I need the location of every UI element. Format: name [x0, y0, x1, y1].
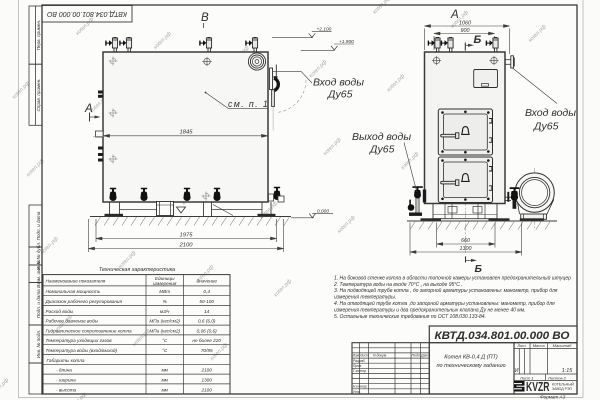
- svg-text:Масштаб: Масштаб: [553, 343, 572, 348]
- svg-text:измерения температуры.: измерения температуры.: [334, 295, 396, 301]
- svg-text:2100: 2100: [200, 387, 212, 392]
- svg-text:по техническому заданию: по техническому заданию: [436, 363, 506, 369]
- svg-text:Техническая характеристика: Техническая характеристика: [99, 267, 175, 273]
- svg-text:Температура воды (вход/выход): Температура воды (вход/выход): [46, 348, 118, 353]
- svg-text:А: А: [84, 103, 93, 115]
- svg-text:14: 14: [204, 309, 210, 314]
- svg-text:N докум.: N докум.: [373, 354, 387, 358]
- svg-text:А: А: [450, 9, 459, 21]
- svg-text:Диапазон рабочего регулировани: Диапазон рабочего регулирования: [45, 299, 123, 304]
- svg-text:Взам. инв. №: Взам. инв. №: [36, 259, 41, 287]
- svg-text:измерения: измерения: [153, 281, 177, 286]
- svg-text:Утв.: Утв.: [353, 390, 361, 394]
- svg-text:Лит.: Лит.: [516, 343, 526, 348]
- svg-text:Разраб.: Разраб.: [353, 359, 366, 363]
- svg-text:КВТД.034.801.00.000 ВО: КВТД.034.801.00.000 ВО: [435, 330, 570, 342]
- svg-text:Единицы: Единицы: [155, 276, 175, 281]
- svg-text:ЗАВОД РЭП: ЗАВОД РЭП: [552, 387, 573, 391]
- svg-text:Пров.: Пров.: [353, 364, 362, 368]
- svg-text:МВт: МВт: [159, 289, 170, 294]
- svg-text:Вход воды: Вход воды: [313, 77, 364, 89]
- svg-text:- ширина: - ширина: [56, 377, 76, 382]
- svg-text:4. На отводящей трубе котла ,: 4. На отводящей трубе котла ,до запорной…: [334, 300, 555, 307]
- svg-text:Дата: Дата: [420, 354, 430, 358]
- svg-text:Н.контр.: Н.контр.: [353, 385, 368, 389]
- svg-text:2100: 2100: [179, 243, 194, 249]
- svg-text:Инв. № подл.: Инв. № подл.: [36, 330, 41, 359]
- svg-text:Подп. и дата: Подп. и дата: [36, 289, 41, 318]
- svg-text:Ду65: Ду65: [369, 144, 395, 156]
- svg-text:0.000: 0.000: [317, 208, 329, 214]
- svg-text:+2.100: +2.100: [317, 26, 332, 32]
- svg-text:Ду65: Ду65: [327, 89, 353, 101]
- svg-text:70/95: 70/95: [201, 348, 213, 353]
- svg-text:Значение: Значение: [196, 278, 217, 283]
- svg-text:0,6 (6,0): 0,6 (6,0): [198, 319, 216, 324]
- svg-text:Справ. примен.: Справ. примен.: [36, 78, 41, 111]
- svg-text:мм: мм: [161, 368, 168, 373]
- svg-text:Номинальная мощность: Номинальная мощность: [46, 289, 101, 294]
- svg-text:не более 220: не более 220: [192, 338, 221, 343]
- svg-text:Гидравлическое сопротивление к: Гидравлическое сопротивление котла: [46, 328, 133, 333]
- svg-text:Листов 2: Листов 2: [547, 375, 567, 380]
- svg-text:Рабочее давление воды: Рабочее давление воды: [46, 319, 99, 324]
- svg-text:Ду65: Ду65: [533, 121, 559, 133]
- svg-text:1. На боковой стенке котла в: 1. На боковой стенке котла в области топ…: [334, 274, 571, 281]
- svg-text:Температура уходящих газов: Температура уходящих газов: [46, 338, 113, 343]
- svg-text:Вход воды: Вход воды: [525, 107, 576, 119]
- svg-text:Котел КВ-0,4 Д (ПТ): Котел КВ-0,4 Д (ПТ): [444, 355, 498, 361]
- svg-text:- длина: - длина: [56, 368, 72, 373]
- svg-text:1300: 1300: [460, 246, 472, 252]
- svg-text:В: В: [201, 12, 209, 24]
- svg-text:мм: мм: [161, 377, 168, 382]
- svg-text:1060: 1060: [459, 20, 471, 26]
- svg-text:660: 660: [461, 238, 470, 244]
- svg-text:Подп.: Подп.: [412, 354, 421, 358]
- svg-text:мм: мм: [161, 387, 168, 392]
- svg-text:Лист: Лист: [359, 354, 369, 358]
- svg-text:5. Остальные технические треб: 5. Остальные технические требования по О…: [334, 314, 486, 320]
- svg-text:1:15: 1:15: [562, 368, 573, 374]
- svg-text:2100: 2100: [200, 368, 212, 373]
- svg-text:измерения температуры и два пр: измерения температуры и два предохраните…: [334, 308, 526, 314]
- svg-text:1975: 1975: [180, 233, 194, 239]
- svg-text:Б: Б: [475, 263, 483, 275]
- svg-text:см. п. 1: см. п. 1: [228, 99, 269, 109]
- svg-text:Перв. примен.: Перв. примен.: [36, 20, 41, 51]
- svg-text:0,4: 0,4: [203, 289, 210, 294]
- svg-text:- высота: - высота: [56, 387, 77, 392]
- svg-text:Масса: Масса: [533, 343, 546, 348]
- svg-text:Формат А3: Формат А3: [540, 395, 566, 400]
- svg-text:0,06 (0,6): 0,06 (0,6): [197, 328, 218, 333]
- svg-text:Подп. и дата: Подп. и дата: [36, 211, 41, 240]
- svg-text:50-100: 50-100: [199, 299, 214, 304]
- svg-text:МПа (кгс/см2): МПа (кгс/см2): [149, 328, 180, 333]
- svg-text:КВТД.034.801.00.000 ВО: КВТД.034.801.00.000 ВО: [47, 10, 127, 17]
- svg-text:Б: Б: [474, 34, 482, 46]
- svg-text:Наименование показателя: Наименование показателя: [46, 278, 106, 283]
- svg-text:KVZR: KVZR: [526, 380, 550, 394]
- svg-text:Изм.: Изм.: [353, 354, 360, 358]
- svg-text:Расход воды: Расход воды: [46, 309, 74, 314]
- svg-text:°С: °С: [162, 338, 168, 343]
- svg-text:3. На подводящей трубе котла: 3. На подводящей трубе котла , до запорн…: [334, 287, 558, 294]
- svg-text:КОТЕЛЬНЫЙ: КОТЕЛЬНЫЙ: [552, 382, 574, 386]
- svg-text:Выход воды: Выход воды: [352, 131, 411, 143]
- svg-text:2. Температура воды на входе: 2. Температура воды на входе 70°С , на в…: [333, 282, 463, 288]
- svg-text:МПа (кгс/см2): МПа (кгс/см2): [149, 319, 180, 324]
- svg-text:°С: °С: [162, 348, 168, 353]
- svg-text:900: 900: [461, 28, 470, 34]
- svg-text:%: %: [163, 299, 167, 304]
- svg-text:Т.контр.: Т.контр.: [353, 369, 367, 373]
- svg-text:Габариты котла: Габариты котла: [47, 358, 85, 363]
- svg-text:м3/ч: м3/ч: [160, 309, 170, 314]
- svg-text:И: И: [515, 368, 519, 374]
- svg-text:1300: 1300: [201, 377, 212, 382]
- svg-text:+1.900: +1.900: [339, 39, 354, 45]
- svg-text:1845: 1845: [180, 130, 194, 136]
